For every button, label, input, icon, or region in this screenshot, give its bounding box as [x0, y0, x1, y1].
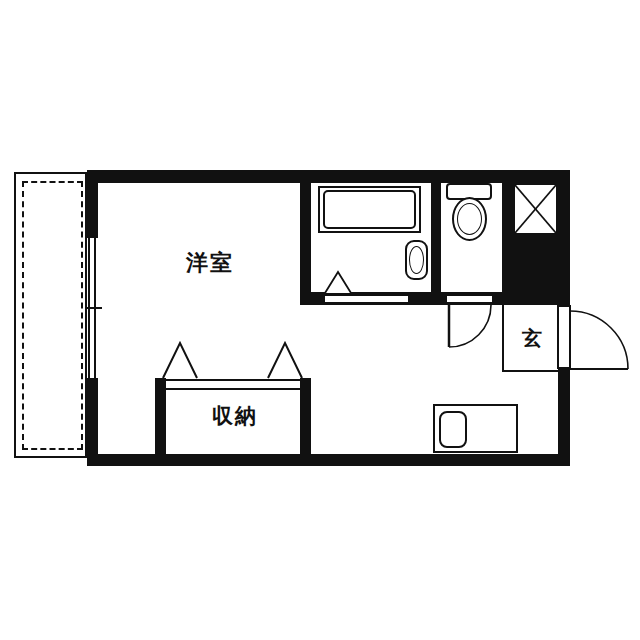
kitchen-sink-icon	[439, 411, 467, 448]
wall-left-lower	[87, 378, 98, 466]
bathtub-inner-icon	[323, 190, 416, 229]
living-room-label: 洋室	[169, 251, 251, 275]
entrance-door-swing-arc	[570, 311, 628, 369]
wall-bottom	[87, 454, 570, 466]
bathroom-door-opening	[325, 294, 408, 304]
wall-top	[87, 170, 570, 183]
closet-label: 収納	[193, 405, 277, 428]
bathroom-folding-door-icon	[325, 272, 351, 293]
wall-bathroom-left	[300, 170, 311, 305]
window-center-tick	[86, 307, 102, 309]
wall-closet-left	[155, 378, 166, 455]
washbasin-bowl-icon	[409, 246, 424, 274]
wall-left-upper	[87, 170, 98, 238]
wall-closet-right	[300, 378, 311, 455]
floor-plan: 洋室 収納 玄	[0, 0, 640, 640]
toilet-door-opening	[447, 294, 492, 304]
closet-folding-door-icon	[268, 343, 302, 378]
utility-shaft-x-box	[513, 183, 558, 235]
entrance-step-line-left	[502, 305, 504, 372]
toilet-door-swing-arc	[449, 305, 491, 347]
entrance-step-line-bottom	[502, 370, 560, 372]
wall-right-lower	[558, 368, 570, 466]
entrance-label: 玄	[519, 327, 545, 349]
entrance-door-open-line	[570, 368, 628, 370]
wall-bathroom-right	[431, 170, 441, 305]
balcony-dashed-border	[22, 181, 83, 450]
closet-folding-door-icon	[163, 343, 197, 378]
entrance-door-leaf	[557, 305, 571, 369]
toilet-seat-icon	[457, 203, 482, 235]
closet-door-track	[166, 379, 300, 390]
